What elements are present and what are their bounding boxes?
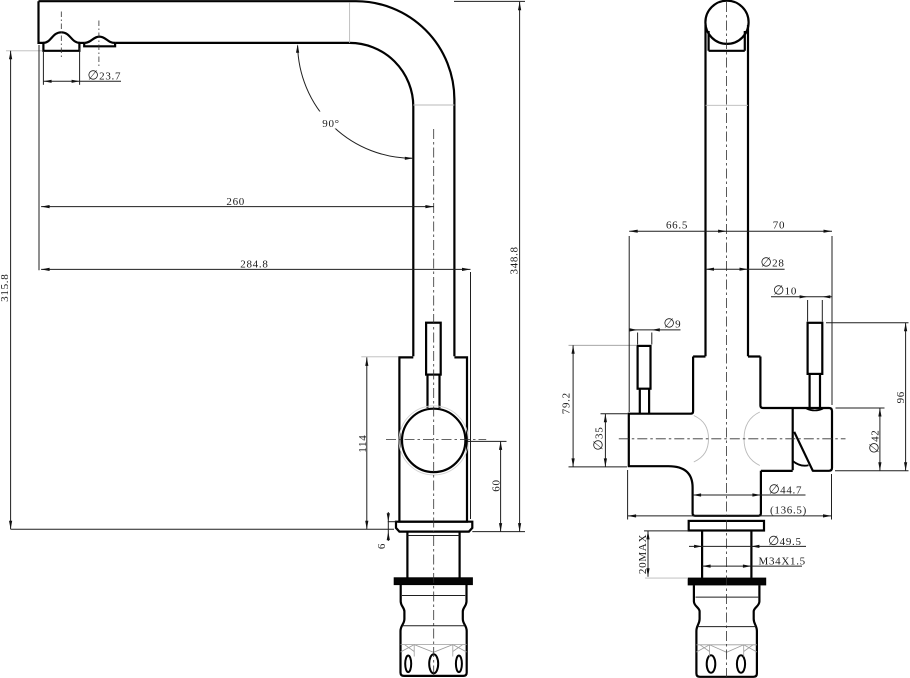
- svg-text:∅9: ∅9: [664, 315, 682, 330]
- svg-text:6: 6: [376, 543, 388, 549]
- svg-text:∅42: ∅42: [866, 429, 881, 453]
- svg-text:70: 70: [773, 220, 785, 232]
- svg-text:(136.5): (136.5): [770, 504, 807, 516]
- svg-text:284.8: 284.8: [240, 259, 268, 271]
- svg-text:∅44.7: ∅44.7: [769, 481, 803, 496]
- svg-text:60: 60: [491, 479, 503, 491]
- svg-text:66.5: 66.5: [666, 220, 688, 232]
- svg-text:20MAX: 20MAX: [637, 534, 649, 574]
- svg-text:79.2: 79.2: [561, 392, 573, 414]
- svg-text:∅28: ∅28: [761, 255, 785, 270]
- svg-text:∅23.7: ∅23.7: [88, 68, 122, 83]
- svg-text:90°: 90°: [322, 118, 340, 130]
- svg-text:315.8: 315.8: [0, 274, 11, 302]
- svg-text:∅49.5: ∅49.5: [768, 533, 802, 548]
- svg-text:348.8: 348.8: [509, 246, 521, 274]
- svg-text:M34X1.5: M34X1.5: [759, 555, 806, 567]
- svg-text:∅10: ∅10: [773, 282, 797, 297]
- svg-text:260: 260: [226, 196, 245, 208]
- svg-text:96: 96: [895, 391, 907, 403]
- svg-text:∅35: ∅35: [591, 427, 606, 451]
- svg-text:114: 114: [357, 435, 369, 453]
